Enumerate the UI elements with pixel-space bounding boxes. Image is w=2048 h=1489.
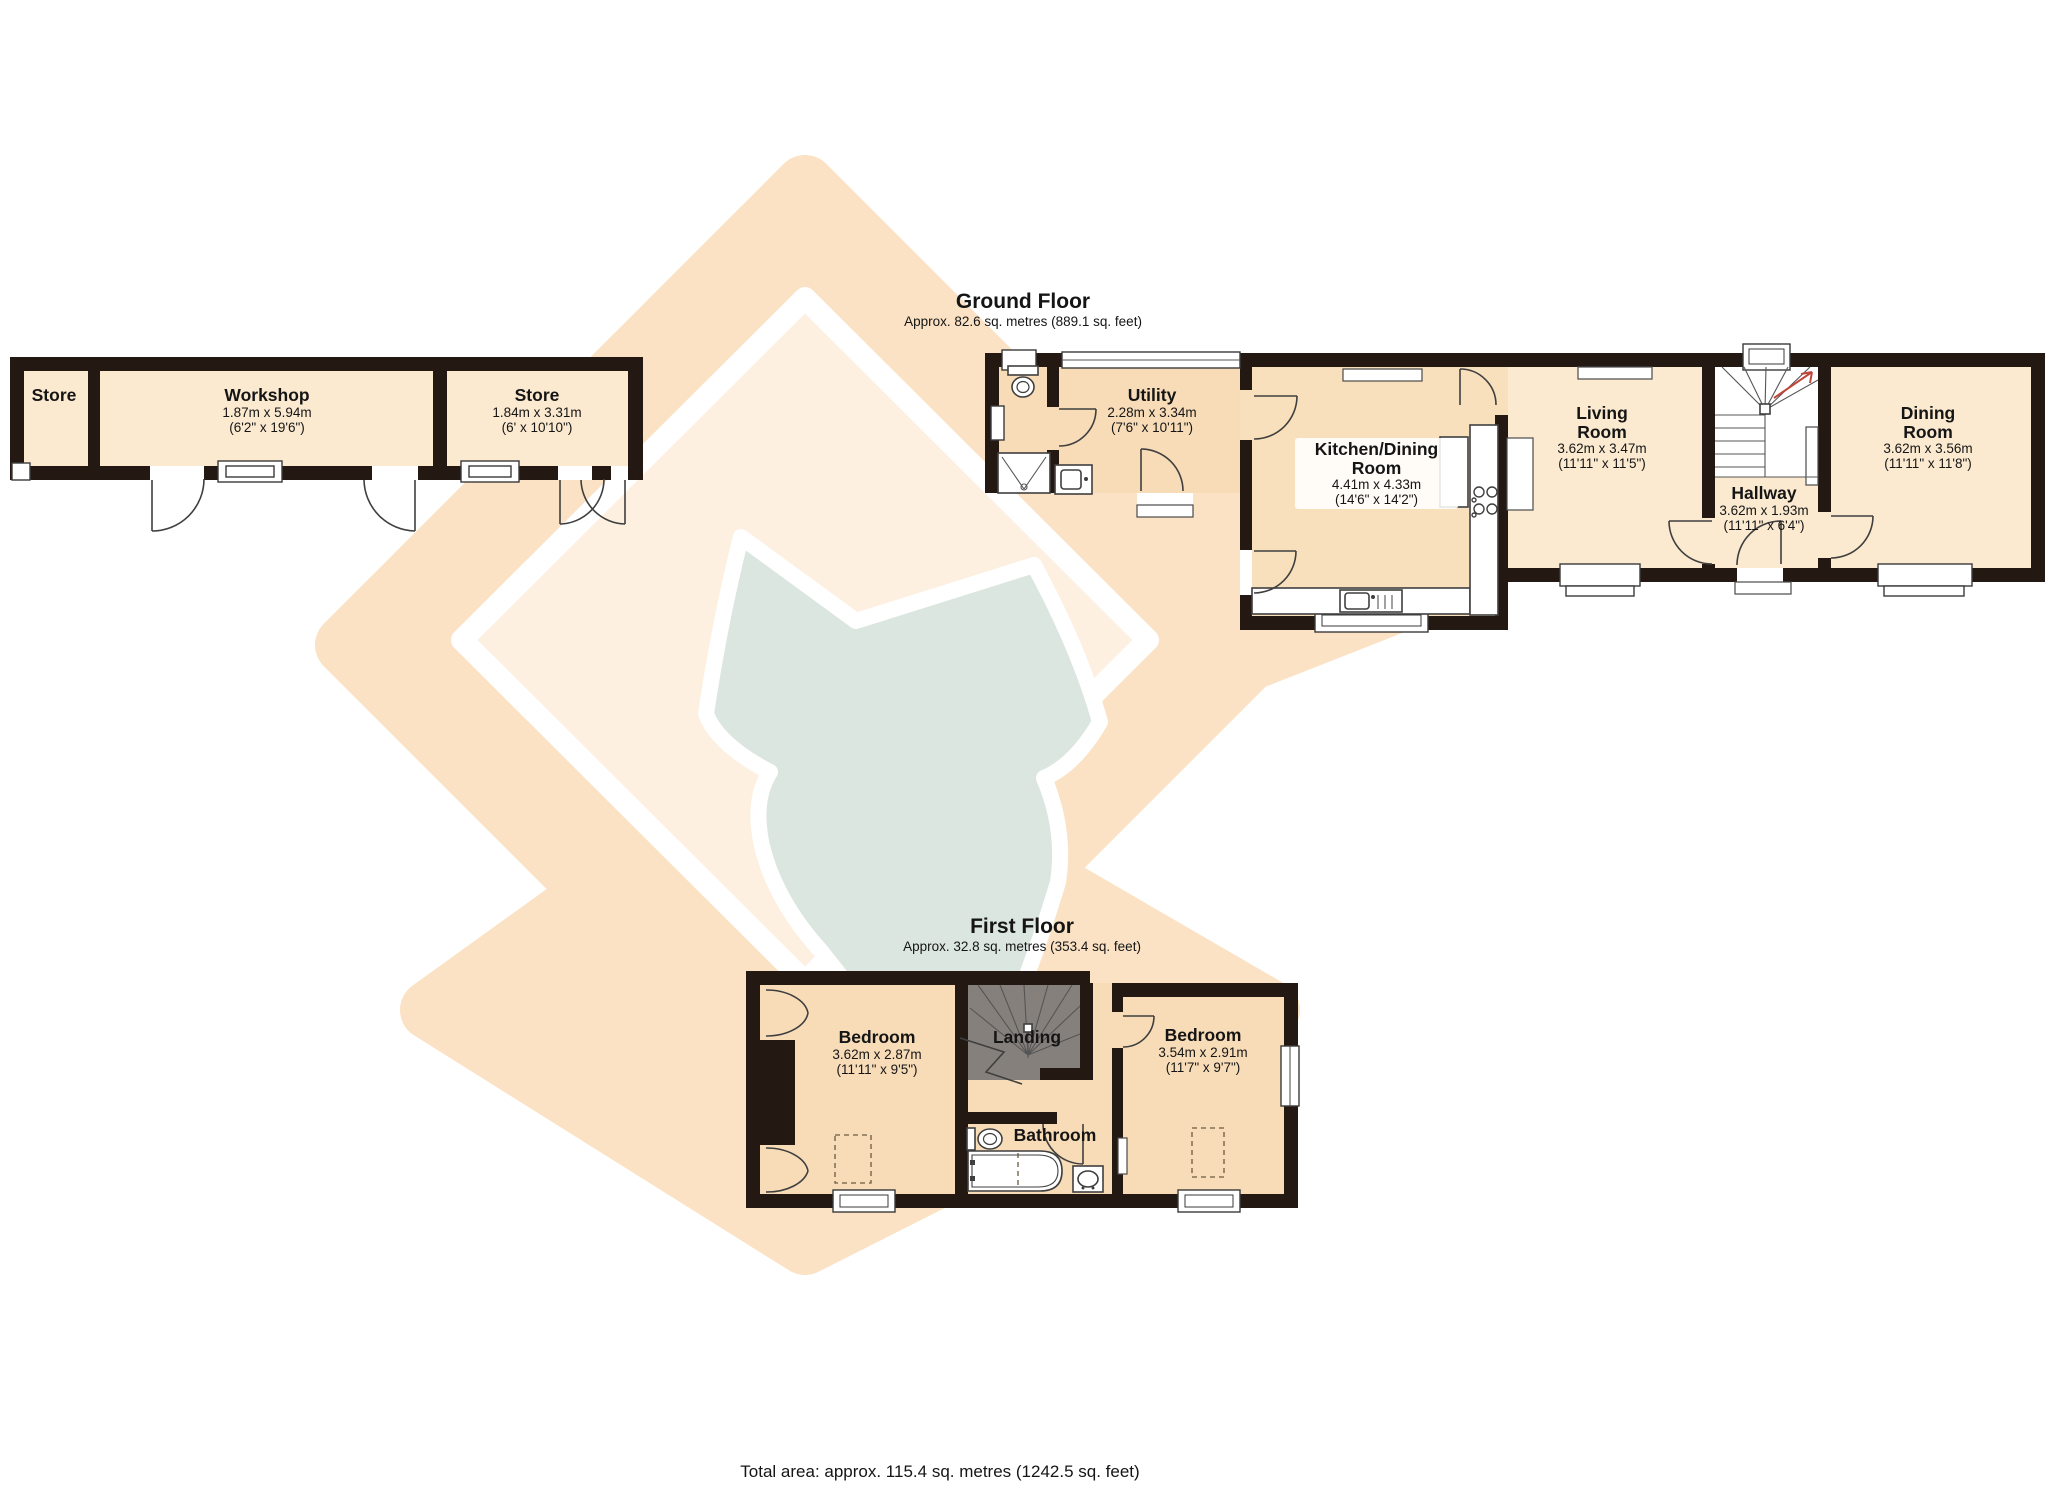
- room-label-landing: Landing: [967, 1028, 1087, 1047]
- utility-fixtures: [1055, 465, 1092, 494]
- room-label-dining: Dining Room 3.62m x 3.56m (11'11" x 11'8…: [1878, 404, 1978, 471]
- room-label-store-right: Store 1.84m x 3.31m (6' x 10'10"): [457, 386, 617, 435]
- first-floor-plan: [746, 971, 1299, 1212]
- room-label-utility: Utility 2.28m x 3.34m (7'6" x 10'11"): [1077, 386, 1227, 435]
- floorplan-graphics: [0, 0, 2048, 1489]
- landing-nook: [1093, 983, 1112, 1080]
- total-area-text: Total area: approx. 115.4 sq. metres (12…: [590, 1462, 1290, 1482]
- room-label-bedroom-left: Bedroom 3.62m x 2.87m (11'11" x 9'5"): [792, 1028, 962, 1077]
- room-label-store-left: Store: [19, 386, 89, 405]
- room-label-kitchen-dining: Kitchen/Dining Room 4.41m x 4.33m (14'6"…: [1295, 438, 1458, 509]
- ground-floor-title: Ground Floor Approx. 82.6 sq. metres (88…: [813, 290, 1233, 332]
- room-label-workshop: Workshop 1.87m x 5.94m (6'2" x 19'6"): [187, 386, 347, 435]
- room-label-bedroom-right: Bedroom 3.54m x 2.91m (11'7" x 9'7"): [1118, 1026, 1288, 1075]
- floorplan-canvas: Ground Floor Approx. 82.6 sq. metres (88…: [0, 0, 2048, 1489]
- first-floor-title: First Floor Approx. 32.8 sq. metres (353…: [812, 915, 1232, 957]
- room-label-hallway: Hallway 3.62m x 1.93m (11'11" x 6'4"): [1689, 484, 1839, 533]
- room-label-bathroom: Bathroom: [975, 1126, 1135, 1145]
- ground-stairwell: [1715, 367, 1818, 477]
- room-label-living: Living Room 3.62m x 3.47m (11'11" x 11'5…: [1552, 404, 1652, 471]
